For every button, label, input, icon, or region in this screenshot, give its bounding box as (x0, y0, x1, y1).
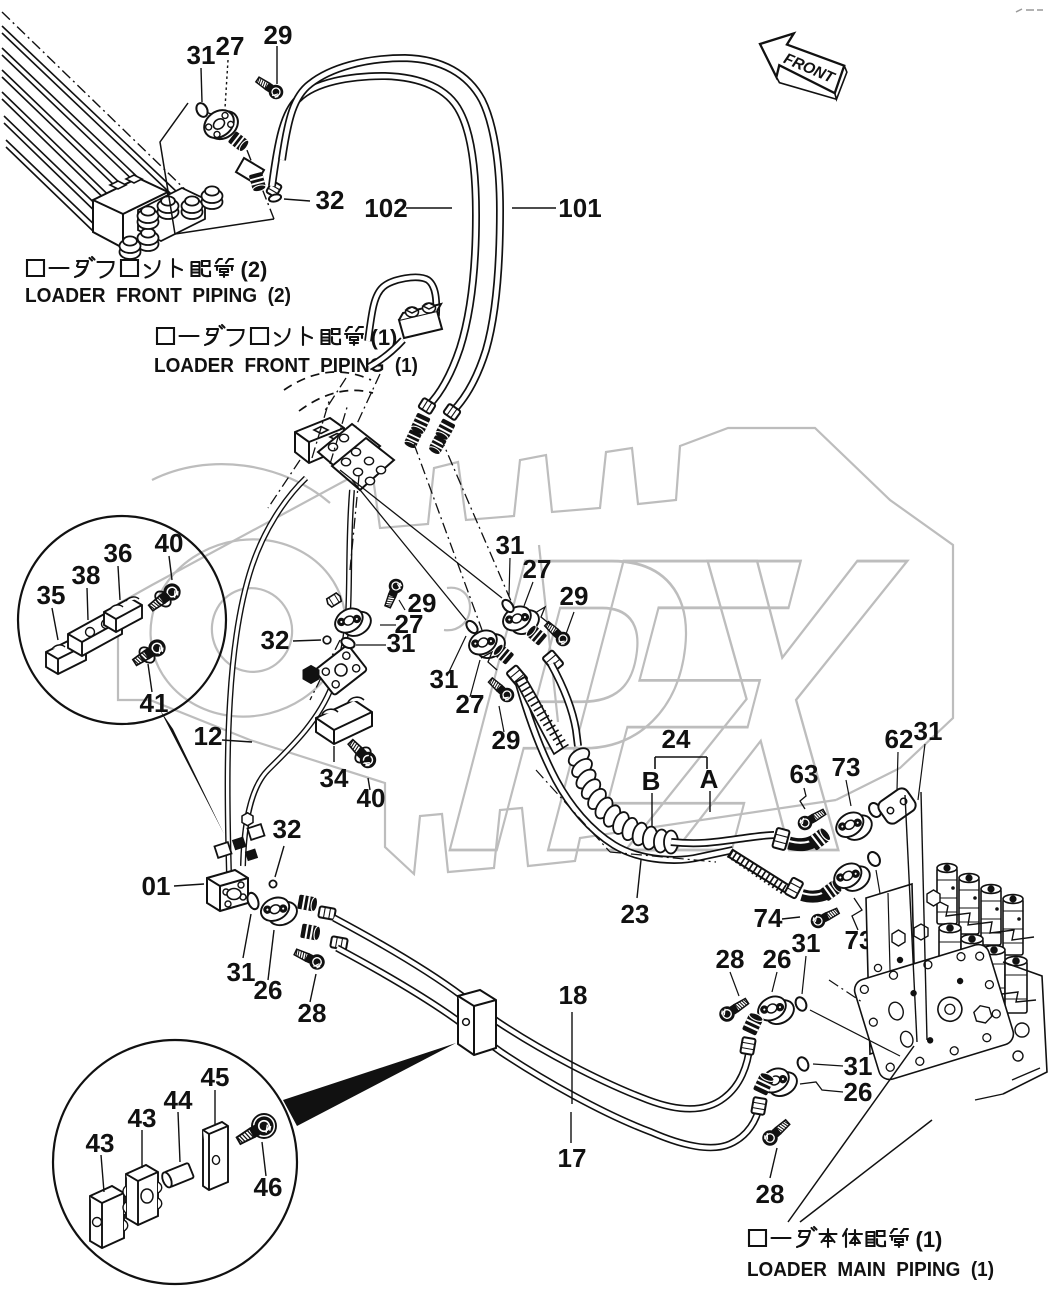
svg-text:32: 32 (273, 814, 302, 844)
svg-text:01: 01 (142, 871, 171, 901)
svg-text:28: 28 (298, 998, 327, 1028)
svg-text:31: 31 (914, 716, 943, 746)
svg-text:23: 23 (621, 899, 650, 929)
svg-text:32: 32 (261, 625, 290, 655)
svg-text:102: 102 (364, 193, 407, 223)
svg-text:31: 31 (496, 530, 525, 560)
svg-text:29: 29 (560, 581, 589, 611)
svg-text:(1): (1) (916, 1227, 943, 1252)
svg-text:34: 34 (320, 763, 349, 793)
svg-text:40: 40 (357, 783, 386, 813)
svg-text:31: 31 (187, 40, 216, 70)
svg-text:62: 62 (885, 724, 914, 754)
svg-text:26: 26 (763, 944, 792, 974)
svg-text:24: 24 (662, 724, 691, 754)
svg-text:A: A (700, 764, 719, 794)
svg-text:31: 31 (227, 957, 256, 987)
svg-text:43: 43 (128, 1103, 157, 1133)
svg-text:26: 26 (844, 1077, 873, 1107)
svg-text:(2): (2) (241, 257, 268, 282)
svg-text:31: 31 (430, 664, 459, 694)
svg-text:32: 32 (316, 185, 345, 215)
svg-text:35: 35 (37, 580, 66, 610)
svg-text:27: 27 (216, 31, 245, 61)
svg-text:101: 101 (558, 193, 601, 223)
svg-text:41: 41 (140, 688, 169, 718)
svg-text:31: 31 (387, 628, 416, 658)
svg-text:27: 27 (523, 554, 552, 584)
svg-text:18: 18 (559, 980, 588, 1010)
svg-text:31: 31 (792, 928, 821, 958)
svg-text:73: 73 (832, 752, 861, 782)
svg-text:26: 26 (254, 975, 283, 1005)
svg-text:12: 12 (194, 721, 223, 751)
svg-text:28: 28 (716, 944, 745, 974)
svg-text:LOADER FRONT PIPING (2): LOADER FRONT PIPING (2) (25, 285, 291, 307)
svg-text:29: 29 (264, 20, 293, 50)
svg-text:74: 74 (754, 903, 783, 933)
svg-text:B: B (642, 766, 661, 796)
svg-text:17: 17 (558, 1143, 587, 1173)
svg-text:28: 28 (756, 1179, 785, 1209)
svg-text:63: 63 (790, 759, 819, 789)
svg-text:38: 38 (72, 560, 101, 590)
svg-text:43: 43 (86, 1128, 115, 1158)
svg-text:44: 44 (164, 1085, 193, 1115)
svg-text:LOADER MAIN PIPING (1): LOADER MAIN PIPING (1) (747, 1259, 994, 1281)
svg-text:40: 40 (155, 528, 184, 558)
svg-text:46: 46 (254, 1172, 283, 1202)
svg-text:29: 29 (492, 725, 521, 755)
svg-text:36: 36 (104, 538, 133, 568)
svg-text:45: 45 (201, 1062, 230, 1092)
svg-text:27: 27 (456, 689, 485, 719)
